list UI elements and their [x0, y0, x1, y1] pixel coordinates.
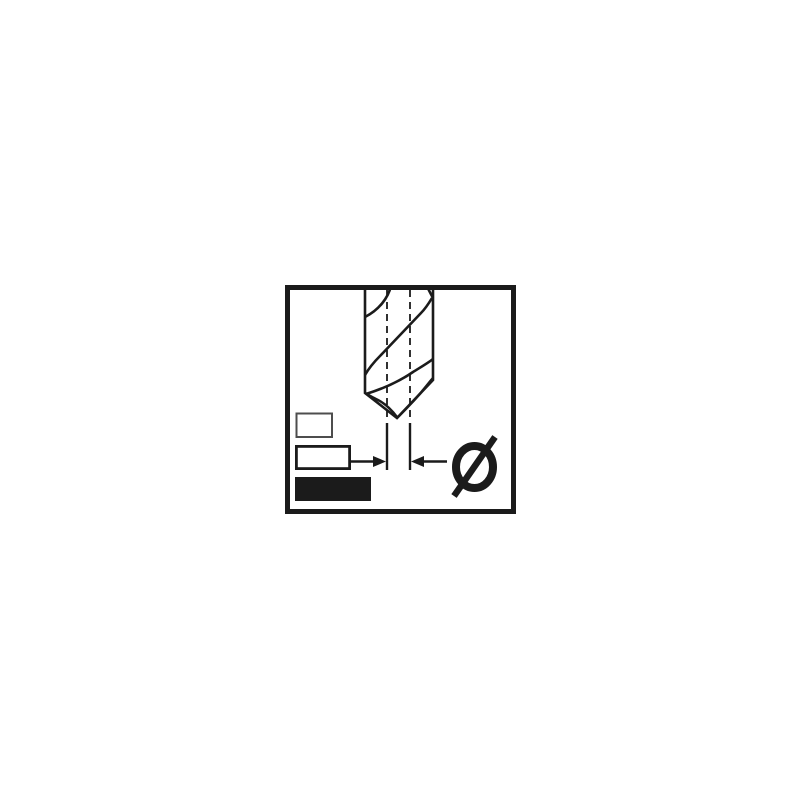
image-canvas: Ø	[0, 0, 800, 800]
size-rectangle-medium-icon	[296, 446, 349, 468]
arrowhead-right	[411, 456, 424, 467]
twist-drill-bit-icon	[365, 285, 433, 418]
size-rectangle-large-filled-icon	[295, 477, 371, 501]
size-rectangles-group	[295, 414, 371, 502]
diameter-symbol-icon	[454, 437, 495, 496]
drill-diameter-pictogram	[0, 0, 800, 800]
arrowhead-left	[373, 456, 386, 467]
size-rectangle-small-icon	[297, 414, 333, 438]
diameter-dimension-arrows-icon	[350, 423, 447, 470]
